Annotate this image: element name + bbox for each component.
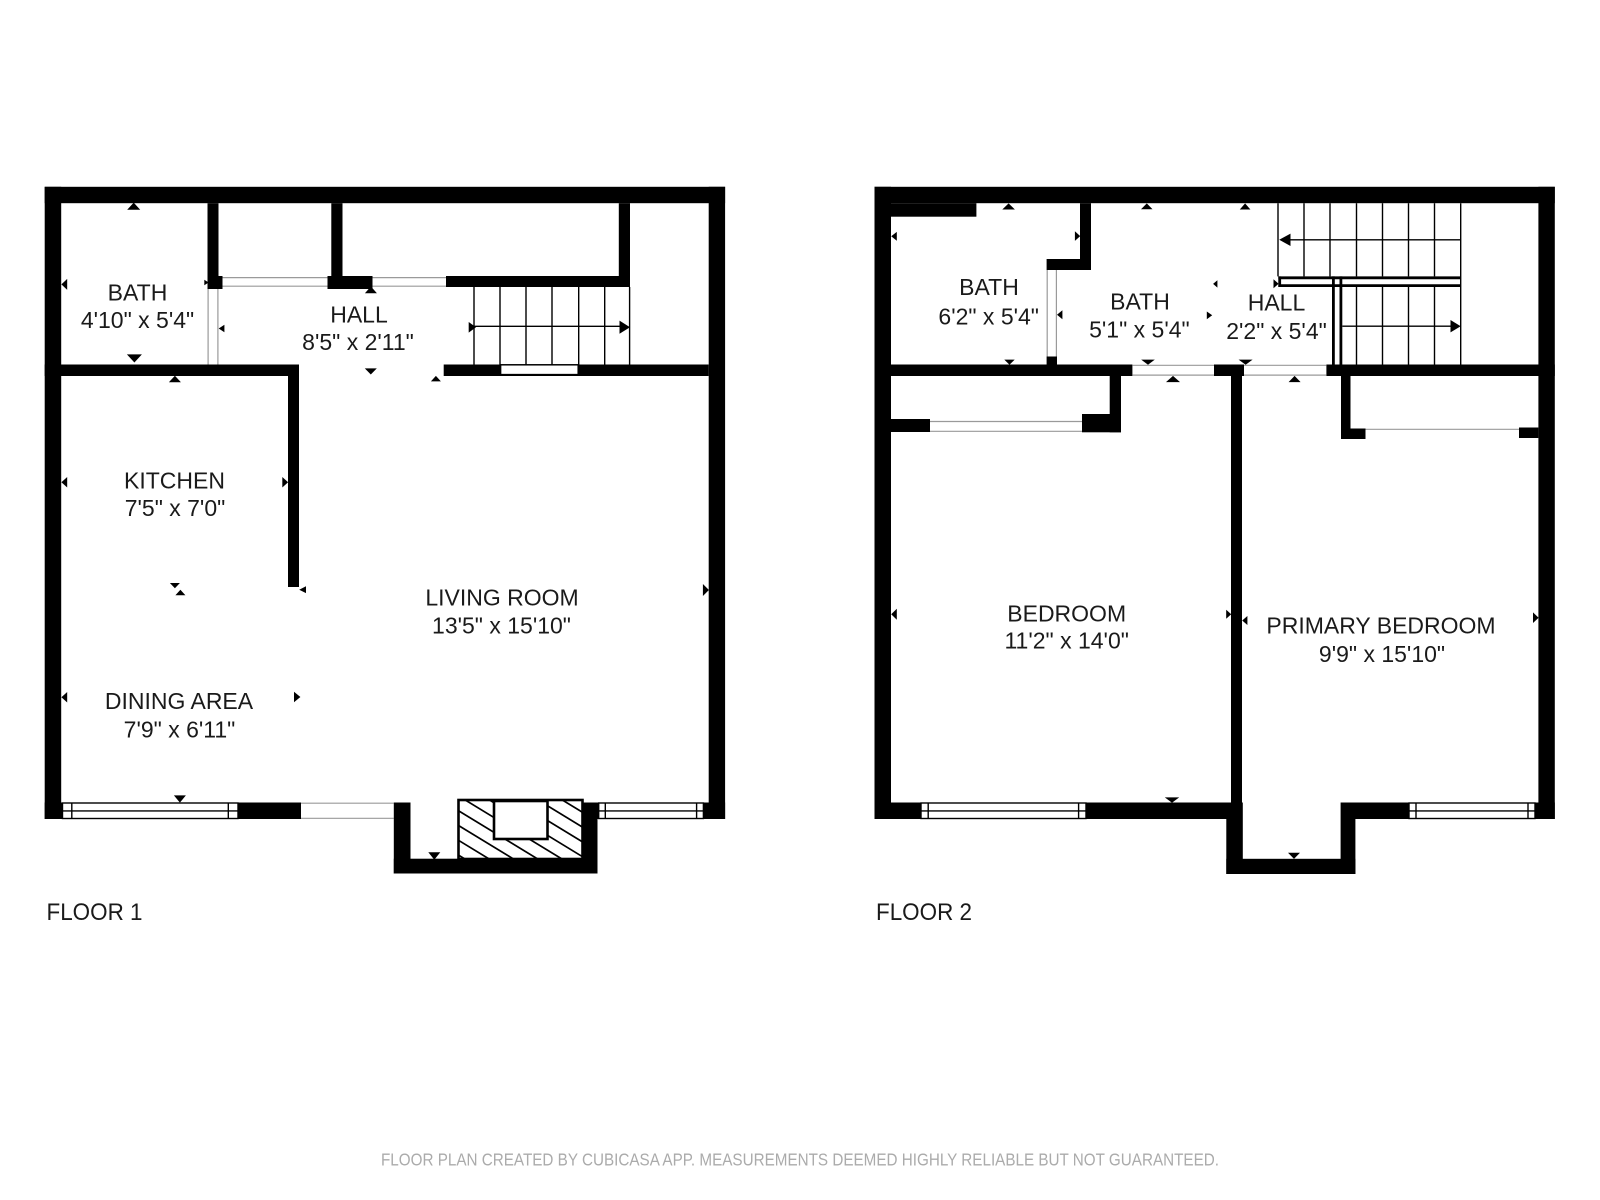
svg-text:13'5" x 15'10": 13'5" x 15'10" [432,613,571,639]
svg-text:7'5" x 7'0": 7'5" x 7'0" [125,495,226,521]
svg-text:DINING AREA: DINING AREA [105,688,254,714]
svg-text:BATH: BATH [1110,289,1170,315]
svg-text:FLOOR PLAN CREATED BY CUBICASA: FLOOR PLAN CREATED BY CUBICASA APP. MEAS… [381,1150,1219,1170]
svg-text:4'10" x 5'4": 4'10" x 5'4" [81,307,194,333]
svg-text:FLOOR 1: FLOOR 1 [47,899,143,926]
svg-text:11'2" x 14'0": 11'2" x 14'0" [1004,628,1128,654]
svg-text:LIVING ROOM: LIVING ROOM [425,585,578,611]
svg-text:9'9" x 15'10": 9'9" x 15'10" [1319,641,1445,667]
svg-text:8'5" x 2'11": 8'5" x 2'11" [302,329,414,355]
svg-text:HALL: HALL [330,302,388,328]
svg-text:BEDROOM: BEDROOM [1007,601,1126,627]
svg-text:7'9" x 6'11": 7'9" x 6'11" [124,717,236,743]
svg-text:HALL: HALL [1248,290,1306,316]
svg-text:6'2" x 5'4": 6'2" x 5'4" [938,304,1039,330]
svg-text:BATH: BATH [959,274,1019,300]
svg-text:FLOOR 2: FLOOR 2 [876,899,972,926]
svg-text:2'2" x 5'4": 2'2" x 5'4" [1226,318,1327,344]
svg-text:PRIMARY BEDROOM: PRIMARY BEDROOM [1266,613,1495,639]
svg-text:KITCHEN: KITCHEN [124,468,225,494]
svg-text:BATH: BATH [108,280,168,306]
svg-text:5'1" x 5'4": 5'1" x 5'4" [1089,317,1190,343]
